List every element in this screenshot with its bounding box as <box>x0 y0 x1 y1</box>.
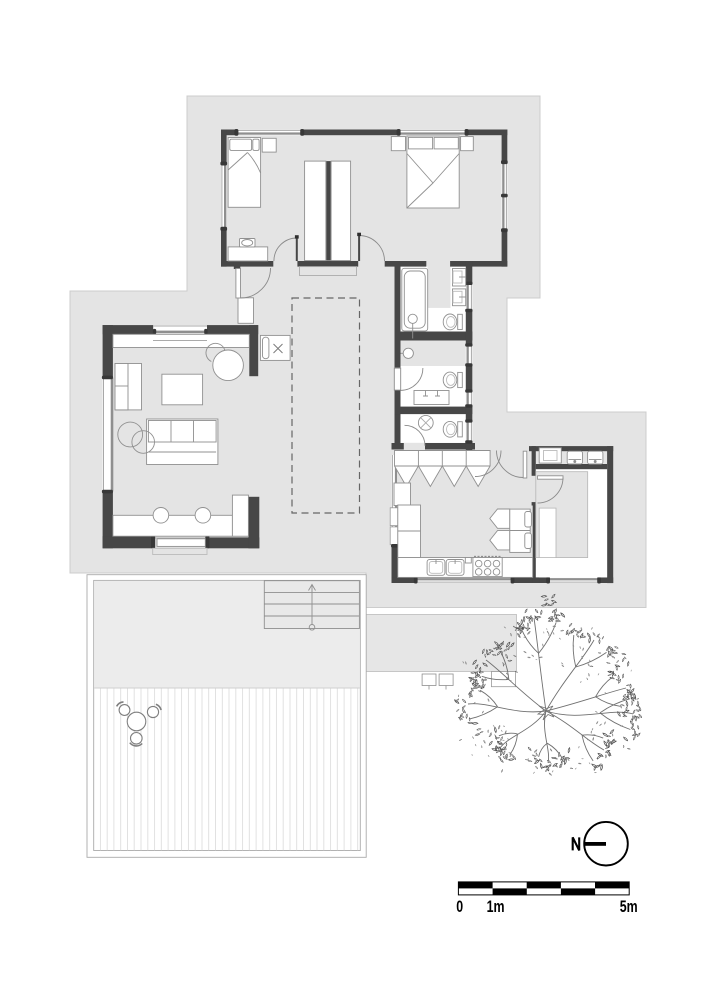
svg-text:1m: 1m <box>487 898 505 916</box>
svg-text:5m: 5m <box>620 898 638 916</box>
svg-text:0: 0 <box>456 898 463 916</box>
